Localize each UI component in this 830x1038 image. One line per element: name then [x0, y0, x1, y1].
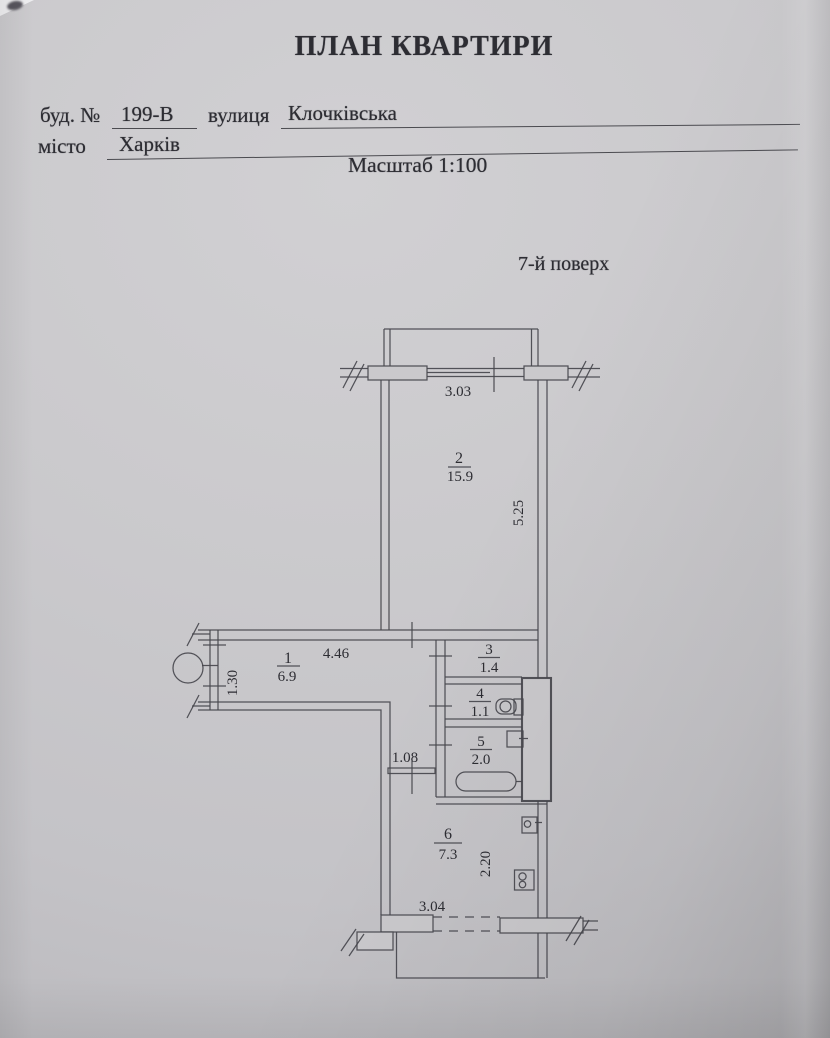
room1-number: 1 [284, 650, 292, 667]
bathtub-icon [456, 772, 522, 791]
stove-icon [515, 870, 535, 890]
room3-number: 3 [485, 642, 493, 658]
balcony-top [384, 329, 538, 366]
walls-main [198, 380, 547, 978]
scanned-floor-plan-page: ПЛАН КВАРТИРИ буд. № 199-В вулиця Клочкі… [0, 0, 830, 1038]
entrance-wall [173, 623, 226, 718]
kitchen-sink-icon [522, 817, 542, 833]
toilet-icon [496, 699, 523, 715]
window-wall-bottom [341, 915, 598, 956]
balcony-bottom [397, 932, 546, 978]
door-knob-circle-icon [173, 653, 203, 683]
room2-area: 15.9 [447, 469, 473, 485]
room5-area: 2.0 [472, 752, 491, 768]
room4-number: 4 [476, 686, 484, 702]
vent-duct [522, 678, 551, 801]
dim-hall-length: 4.46 [323, 646, 350, 662]
room6-number: 6 [444, 826, 452, 843]
dim-room2-depth: 5.25 [511, 500, 527, 526]
dim-window-top: 3.03 [445, 384, 471, 400]
dim-kitchen-depth: 2.20 [478, 851, 494, 877]
room5-number: 5 [477, 734, 485, 750]
dim-window-bottom: 3.04 [419, 899, 446, 915]
room6-area: 7.3 [439, 847, 458, 863]
dim-kitchen-doorway: 1.08 [392, 750, 418, 766]
floor-plan-drawing: 3.03 2 15.9 5.25 4.46 1 6.9 1.30 3 1.4 4… [0, 0, 830, 1038]
room1-area: 6.9 [278, 669, 297, 685]
room2-number: 2 [455, 450, 463, 467]
dim-hall-width: 1.30 [225, 670, 241, 696]
room4-area: 1.1 [471, 704, 490, 720]
room3-area: 1.4 [480, 660, 499, 676]
